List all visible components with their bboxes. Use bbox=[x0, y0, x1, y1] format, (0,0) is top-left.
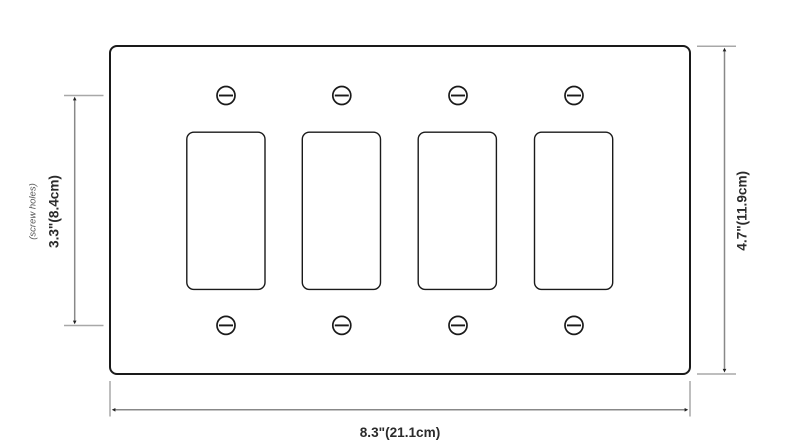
svg-text:(screw holes): (screw holes) bbox=[28, 183, 39, 240]
svg-text:8.3"(21.1cm): 8.3"(21.1cm) bbox=[360, 425, 441, 440]
svg-text:4.7"(11.9cm): 4.7"(11.9cm) bbox=[734, 171, 749, 251]
svg-text:3.3"(8.4cm): 3.3"(8.4cm) bbox=[47, 175, 62, 248]
